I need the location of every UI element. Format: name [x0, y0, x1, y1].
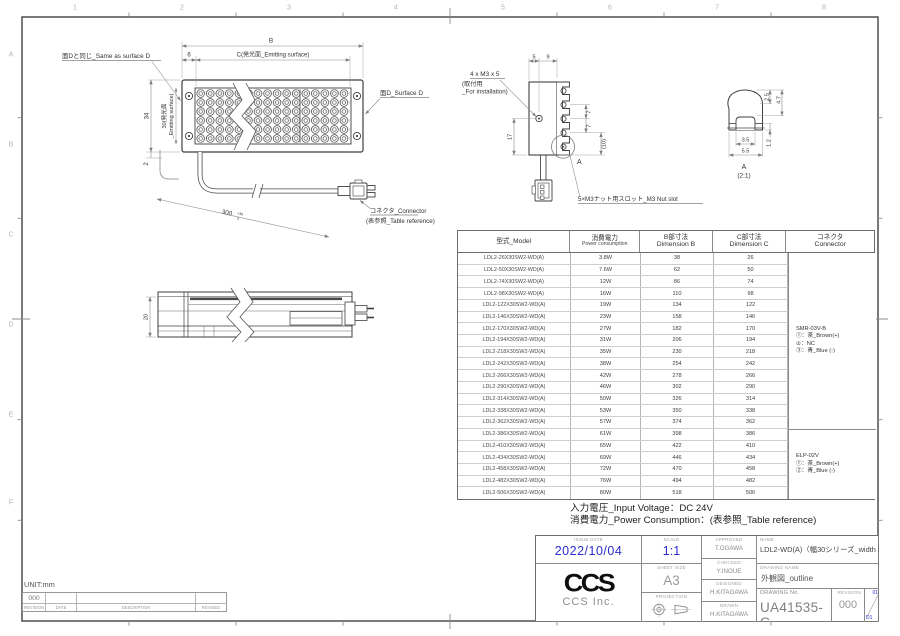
cell-power: 3.8W — [571, 253, 641, 264]
cell-model: LDL2-194X30SW2-WD(A) — [458, 335, 571, 346]
cell-c: 74 — [714, 276, 788, 287]
grid-col-7: 7 — [715, 5, 719, 12]
cell-c: 482 — [714, 476, 788, 487]
cell-model: LDL2-266X30SW2-WD(A) — [458, 370, 571, 381]
detail-a-scale: (2:1) — [737, 173, 750, 180]
dim-2: 2 — [144, 162, 150, 166]
drawing-sheet: B 6 C(発光面_Emitting surface) 34 30(発光面 _E… — [0, 0, 900, 636]
header-dim-b-en: Dimension B — [657, 241, 696, 249]
cell-power: 65W — [571, 441, 641, 452]
cell-b: 494 — [641, 476, 714, 487]
cell-power: 80W — [571, 487, 641, 499]
revision-history-revised-label: REVISED — [196, 604, 226, 611]
svg-text:300: 300 — [221, 209, 233, 218]
cell-power: 50W — [571, 394, 641, 405]
cell-model: LDL2-506X30SW2-WD(A) — [458, 487, 571, 499]
revision-history-description-label: DESCRIPTION — [77, 604, 196, 611]
cell-b: 422 — [641, 441, 714, 452]
grid-row-a: A — [9, 52, 14, 59]
emit-30-jp: 30(発光面 — [160, 103, 168, 128]
detail-a-title: A — [742, 164, 747, 171]
cell-b: 302 — [641, 382, 714, 393]
scale-cell: SCALE 1:1 — [641, 536, 701, 563]
grid-row-d: D — [8, 322, 13, 329]
connector-pin: ①：茶_Brown(+) — [796, 333, 876, 340]
cell-power: 42W — [571, 370, 641, 381]
sheet-size-cell: SHEET SIZE A3 — [641, 563, 701, 592]
cell-b: 230 — [641, 347, 714, 358]
revision-value: 000 — [832, 595, 864, 615]
cell-b: 398 — [641, 429, 714, 440]
issue-date-value: 2022/10/04 — [536, 542, 641, 560]
cell-c: 26 — [714, 253, 788, 264]
cell-c: 50 — [714, 265, 788, 276]
header-model: 型式_Model — [458, 231, 570, 252]
cell-c: 146 — [714, 312, 788, 323]
cell-model: LDL2-146X30SW2-WD(A) — [458, 312, 571, 323]
cell-power: 35W — [571, 347, 641, 358]
cell-power: 69W — [571, 452, 641, 463]
ccs-logo: CCS — [536, 571, 641, 595]
same-as-surface-d-label: 面Dと同じ_Same as surface D — [62, 52, 150, 60]
cell-model: LDL2-290X30SW2-WD(A) — [458, 382, 571, 393]
grid-row-b: B — [9, 142, 14, 149]
header-connector: コネクタ Connector — [786, 231, 874, 252]
revision-history-version: 000 — [23, 593, 46, 603]
cell-model: LDL2-50X30SW2-WD(A) — [458, 265, 571, 276]
cell-b: 278 — [641, 370, 714, 381]
header-power-en: Power consumption — [582, 242, 628, 248]
cell-b: 86 — [641, 276, 714, 287]
connector-ref-label: (表参照_Table reference) — [366, 217, 435, 225]
grid-col-5: 5 — [501, 5, 505, 12]
drawing-no-value: UA41535-G — [757, 596, 831, 622]
grid-col-3: 3 — [287, 5, 291, 12]
cell-power: 23W — [571, 312, 641, 323]
designed-cell: DESIGNED H.KITAGAWA — [701, 579, 756, 601]
cell-power: 57W — [571, 417, 641, 428]
cell-power: 31W — [571, 335, 641, 346]
cell-model: LDL2-74X30SW2-WD(A) — [458, 276, 571, 287]
cell-c: 194 — [714, 335, 788, 346]
cell-c: 386 — [714, 429, 788, 440]
dim-7a: 7 — [587, 110, 593, 113]
m3-label-jp: (取付用 — [462, 80, 483, 88]
cell-c: 434 — [714, 452, 788, 463]
end-view: 5 9 17 7 7 (10) 4 x M3 x 5 (取付用 _For ins… — [461, 55, 703, 204]
revision-history-date-label: DATE — [46, 604, 77, 611]
svg-text:0: 0 — [237, 216, 240, 220]
revision-zone-top: 01 — [872, 590, 878, 596]
header-model-label: 型式_Model — [496, 238, 531, 246]
drawn-value: H.KITAGAWA — [702, 608, 756, 621]
cell-model: LDL2-458X30SW2-WD(A) — [458, 464, 571, 475]
dim-10: (10) — [602, 139, 608, 149]
detail-a-mark: A — [577, 159, 582, 166]
grid-col-2: 2 — [180, 5, 184, 12]
grid-row-e: E — [9, 412, 14, 419]
drawing-no-label: DRAWING No. — [757, 589, 831, 596]
cell-power: 27W — [571, 323, 641, 334]
cell-power: 61W — [571, 429, 641, 440]
header-dim-c: C部寸法 Dimension C — [713, 231, 787, 252]
dim-17: 17 — [508, 134, 514, 140]
cell-c: 362 — [714, 417, 788, 428]
dim-3-5: 3.5 — [742, 138, 750, 144]
checked-cell: CHECKED Y.INOUE — [701, 558, 756, 580]
cell-model: LDL2-362X30SW2-WD(A) — [458, 417, 571, 428]
dim-7b: 7 — [587, 124, 593, 127]
dim-9: 9 — [546, 55, 549, 61]
cell-b: 326 — [641, 394, 714, 405]
cell-model: LDL2-242X30SW2-WD(A) — [458, 358, 571, 369]
dim-34: 34 — [145, 112, 151, 119]
cell-model: LDL2-338X30SW2-WD(A) — [458, 405, 571, 416]
connector-name: ELP-02V — [796, 453, 876, 460]
revision-zone-bottom: D1 — [866, 615, 872, 621]
revision-history-values: 000 — [23, 593, 226, 604]
drawn-cell: DRAWN H.KITAGAWA — [701, 601, 756, 623]
sheet-size-value: A3 — [642, 570, 701, 590]
issue-date-cell: ISSUE DATE 2022/10/04 — [536, 536, 641, 563]
front-view: B 6 C(発光面_Emitting surface) 34 30(発光面 _E… — [62, 38, 435, 238]
connector-pin: ③：青_Blue (-) — [796, 348, 876, 355]
m3-label: 4 x M3 x 5 — [470, 71, 500, 78]
cell-power: 46W — [571, 382, 641, 393]
cell-power: 38W — [571, 358, 641, 369]
cell-model: LDL2-314X30SW2-WD(A) — [458, 394, 571, 405]
approved-value: T.OGAWA — [702, 542, 756, 555]
connector-pin: ②：青_Blue (-) — [796, 468, 876, 475]
revision-history-table: 000 REVISION DATE DESCRIPTION REVISED — [22, 592, 227, 612]
dim-5: 5 — [532, 55, 535, 61]
cell-b: 254 — [641, 358, 714, 369]
cell-c: 218 — [714, 347, 788, 358]
revision-history-date — [46, 593, 77, 603]
cell-b: 134 — [641, 300, 714, 311]
grid-col-1: 1 — [73, 5, 77, 12]
cell-power: 16W — [571, 288, 641, 299]
cell-c: 410 — [714, 441, 788, 452]
company-name: CCS Inc. — [536, 596, 641, 608]
header-dim-c-en: Dimension C — [730, 241, 769, 249]
logo-cell: CCS CCS Inc. — [536, 563, 641, 622]
dim-c: C(発光面_Emitting surface) — [237, 51, 310, 59]
cell-b: 374 — [641, 417, 714, 428]
cell-b: 62 — [641, 265, 714, 276]
cell-model: LDL2-386X30SW2-WD(A) — [458, 429, 571, 440]
cell-c: 122 — [714, 300, 788, 311]
dim-6: 6 — [187, 53, 191, 59]
name-value: LDL2-WD(A)（幅30シリーズ_width 30 series) — [757, 542, 879, 555]
header-dim-c-jp: C部寸法 — [737, 234, 762, 242]
revision-history-labels: REVISION DATE DESCRIPTION REVISED — [23, 604, 226, 611]
cell-power: 76W — [571, 476, 641, 487]
side-view: 20 — [144, 288, 375, 342]
revision-label: REVISION — [832, 589, 864, 595]
cell-c: 506 — [714, 487, 788, 499]
cell-power: 53W — [571, 405, 641, 416]
third-angle-projection-icon — [650, 601, 694, 618]
title-block: ISSUE DATE 2022/10/04 CCS CCS Inc. SCALE… — [535, 535, 878, 621]
cell-b: 158 — [641, 312, 714, 323]
cell-power: 19W — [571, 300, 641, 311]
cell-b: 446 — [641, 452, 714, 463]
cell-model: LDL2-482X30SW2-WD(A) — [458, 476, 571, 487]
notes: 入力電圧_Input Voltage：DC 24V 消費電力_Power Con… — [570, 503, 816, 526]
cell-c: 170 — [714, 323, 788, 334]
m3-label-en: _For installation) — [461, 89, 508, 96]
drawing-name-value: 外観図_outline — [757, 570, 879, 584]
cell-b: 38 — [641, 253, 714, 264]
note-power-consumption: 消費電力_Power Consumption：(表参照_Table refere… — [570, 515, 816, 527]
header-power: 消費電力 Power consumption — [570, 231, 640, 252]
connector-group-elp: ELP-02V ①：茶_Brown(+) ②：青_Blue (-) — [789, 429, 876, 499]
header-dim-b-jp: B部寸法 — [664, 234, 688, 242]
grid-row-f: F — [9, 500, 13, 507]
cell-b: 350 — [641, 405, 714, 416]
cell-c: 314 — [714, 394, 788, 405]
cell-b: 110 — [641, 288, 714, 299]
grid-col-4: 4 — [394, 5, 398, 12]
name-cell: NAME LDL2-WD(A)（幅30シリーズ_width 30 series) — [756, 536, 879, 563]
emit-30-en: _Emitting surface) — [169, 93, 175, 139]
scale-value: 1:1 — [642, 542, 701, 560]
cell-power: 7.6W — [571, 265, 641, 276]
checked-value: Y.INOUE — [702, 565, 756, 578]
approved-cell: APPROVED T.OGAWA — [701, 536, 756, 558]
cell-model: LDL2-26X30SW2-WD(A) — [458, 253, 571, 264]
revision-history-version-label: REVISION — [23, 604, 46, 611]
cell-b: 182 — [641, 323, 714, 334]
nut-slot-label: 5×M3ナット用スロット_M3 Nut slot — [578, 196, 678, 203]
header-connector-jp: コネクタ — [817, 234, 843, 242]
dim-20: 20 — [144, 314, 150, 320]
cell-c: 338 — [714, 405, 788, 416]
grid-col-8: 8 — [822, 5, 826, 12]
surface-d-label: 面D_Surface D — [380, 89, 423, 97]
grid-row-c: C — [8, 232, 13, 239]
model-spec-table: 型式_Model 消費電力 Power consumption B部寸法 Dim… — [457, 230, 875, 500]
revision-zone-cell: 01 D1 — [864, 588, 879, 622]
cell-model: LDL2-170X30SW2-WD(A) — [458, 323, 571, 334]
designed-value: H.KITAGAWA — [702, 586, 756, 599]
cell-b: 206 — [641, 335, 714, 346]
detail-a-view: 3.5 5.5 2.5 4.7 1.2 A (2:1) — [727, 90, 784, 180]
header-dim-b: B部寸法 Dimension B — [640, 231, 713, 252]
spec-table-header: 型式_Model 消費電力 Power consumption B部寸法 Dim… — [458, 231, 874, 253]
cell-model: LDL2-410X30SW2-WD(A) — [458, 441, 571, 452]
connector-label: コネクタ_Connector — [370, 207, 427, 215]
cell-c: 290 — [714, 382, 788, 393]
revision-cell: REVISION 000 — [831, 588, 864, 622]
cell-b: 518 — [641, 487, 714, 499]
cell-model: LDL2-98X30SW2-WD(A) — [458, 288, 571, 299]
drawing-no-cell: DRAWING No. UA41535-G — [756, 588, 831, 622]
projection-cell: PROJECTION — [641, 592, 701, 622]
dim-4-7: 4.7 — [777, 96, 783, 104]
cell-c: 266 — [714, 370, 788, 381]
drawing-name-cell: DRAWING NAME 外観図_outline — [756, 563, 879, 588]
dim-2-5: 2.5 — [765, 93, 771, 101]
revision-history-revised — [196, 593, 226, 603]
note-input-voltage: 入力電圧_Input Voltage：DC 24V — [570, 503, 816, 515]
cell-model: LDL2-218X30SW2-WD(A) — [458, 347, 571, 358]
spec-table-body: LDL2-26X30SW2-WD(A)3.8W3826LDL2-50X30SW2… — [458, 253, 874, 499]
cable-length-dim: 300 +30 0 — [221, 208, 244, 221]
cell-c: 98 — [714, 288, 788, 299]
dim-1-2: 1.2 — [767, 139, 773, 147]
cell-c: 242 — [714, 358, 788, 369]
cell-power: 72W — [571, 464, 641, 475]
connector-pin: ①：茶_Brown(+) — [796, 461, 876, 468]
dim-5-5: 5.5 — [742, 149, 750, 155]
connector-column: SMR-03V-B ①：茶_Brown(+) ②：NC ③：青_Blue (-)… — [788, 253, 876, 499]
grid-col-6: 6 — [608, 5, 612, 12]
unit-label: UNIT:mm — [24, 580, 55, 589]
cell-c: 458 — [714, 464, 788, 475]
cell-model: LDL2-434X30SW2-WD(A) — [458, 452, 571, 463]
cell-power: 12W — [571, 276, 641, 287]
header-connector-en: Connector — [815, 241, 846, 249]
connector-group-smr: SMR-03V-B ①：茶_Brown(+) ②：NC ③：青_Blue (-) — [789, 253, 876, 429]
cell-b: 470 — [641, 464, 714, 475]
cell-model: LDL2-122X30SW2-WD(A) — [458, 300, 571, 311]
revision-history-description — [77, 593, 196, 603]
dim-b: B — [269, 38, 273, 45]
